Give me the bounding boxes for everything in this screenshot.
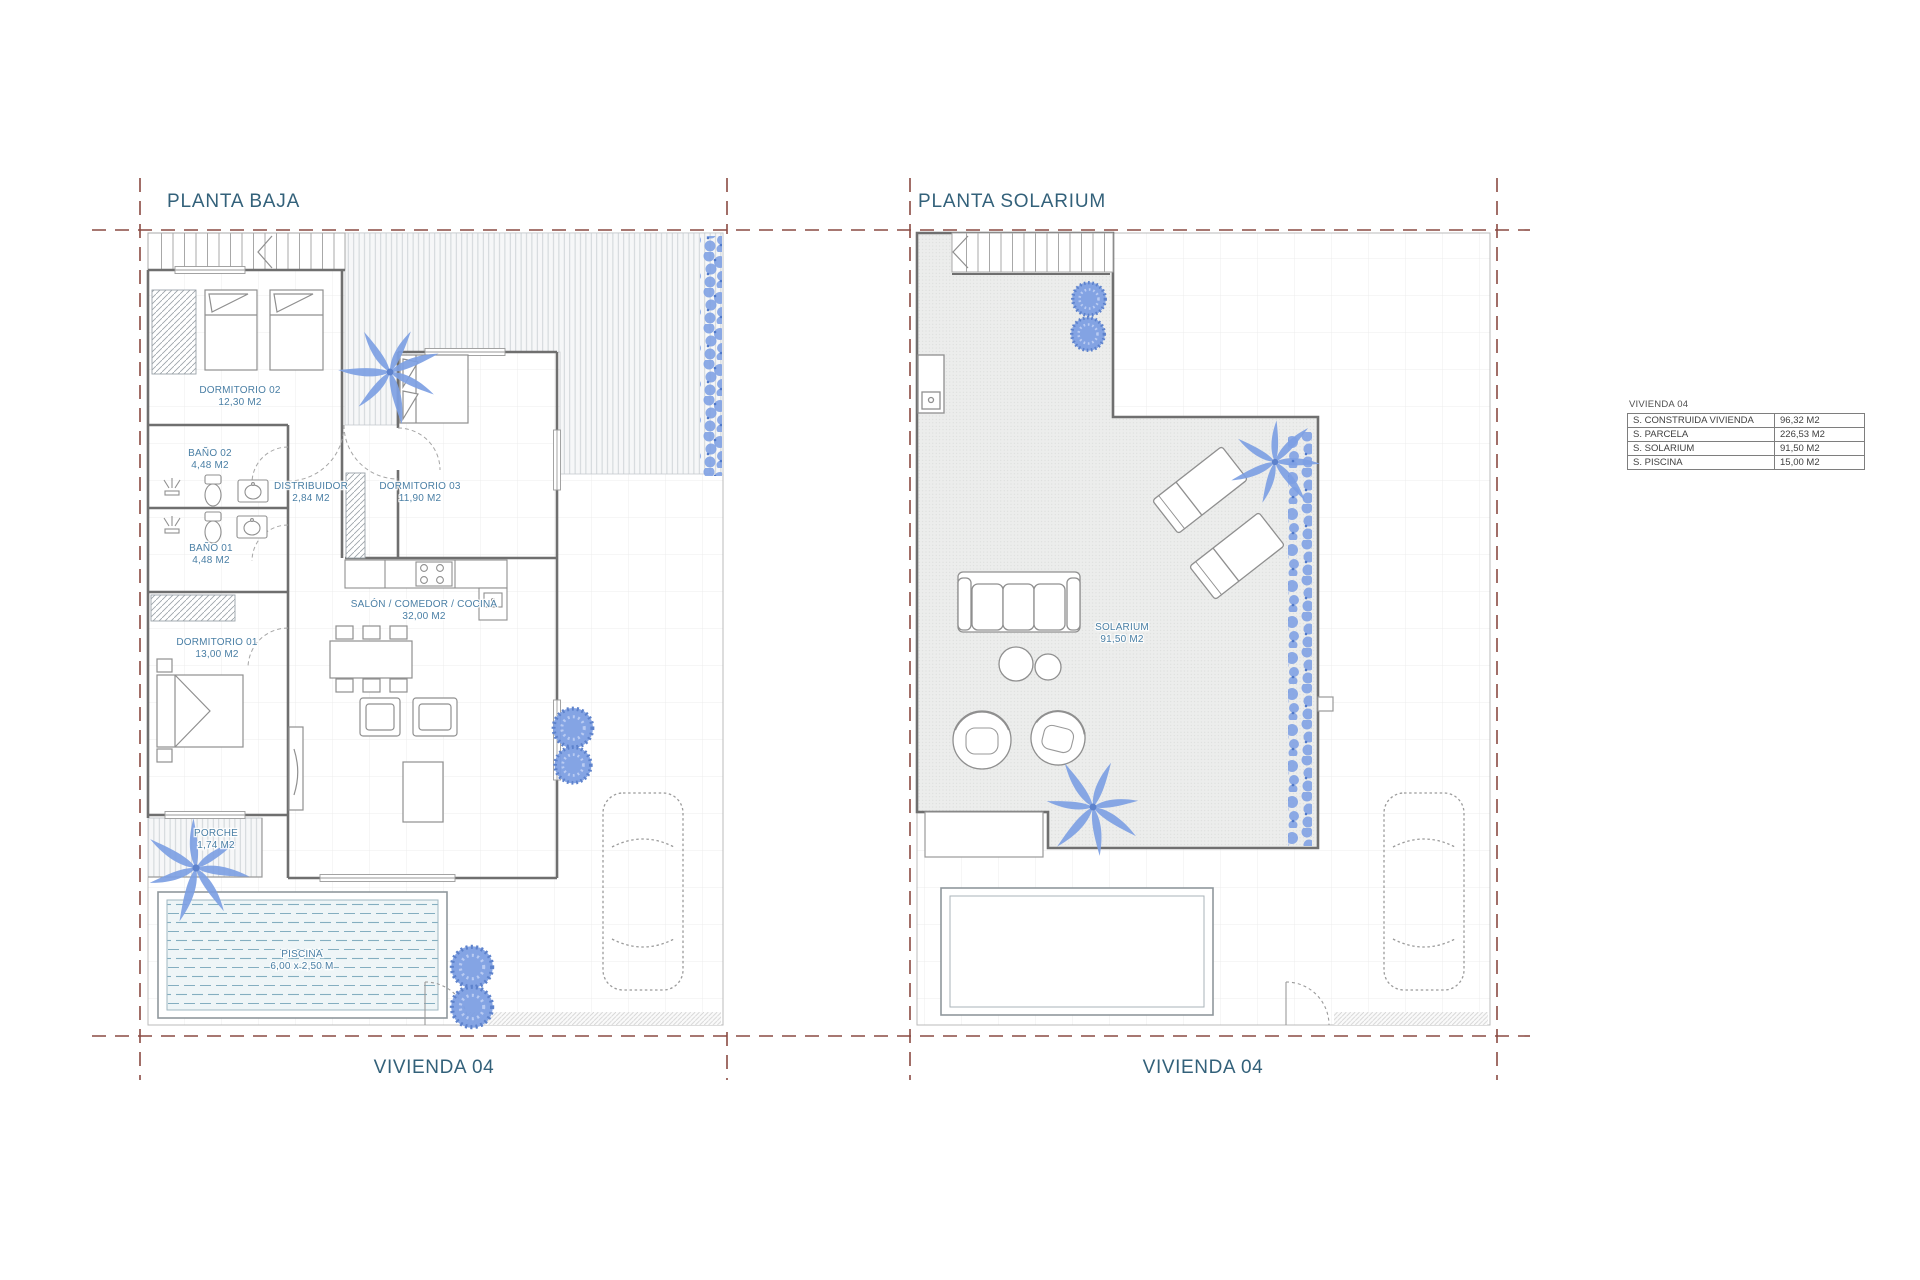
- table-cell-value: 15,00 M2: [1775, 456, 1865, 470]
- room-area-solarium: 91,50 M2: [1100, 634, 1144, 645]
- room-area-dormitorio-03: 11,90 M2: [399, 493, 442, 504]
- room-label-dormitorio-01: DORMITORIO 01: [176, 637, 258, 648]
- bush: [1072, 282, 1106, 316]
- table-cell-value: 91,50 M2: [1775, 442, 1865, 456]
- summary-table: S. CONSTRUIDA VIVIENDA 96,32 M2 S. PARCE…: [1627, 413, 1865, 470]
- room-area-dormitorio-01: 13,00 M2: [195, 649, 239, 660]
- round-table: [1035, 654, 1061, 680]
- table-cell-value: 96,32 M2: [1775, 414, 1865, 428]
- room-area-dormitorio-02: 12,30 M2: [218, 397, 262, 408]
- driveway-strip: [467, 1012, 721, 1025]
- round-table: [999, 647, 1033, 681]
- room-label-solarium: SOLARIUM: [1095, 622, 1149, 633]
- room-label-distribuidor: DISTRIBUIDOR: [274, 481, 348, 492]
- table-cell-label: S. SOLARIUM: [1628, 442, 1775, 456]
- dining-set: [330, 626, 412, 692]
- pool-outline: [941, 888, 1213, 1015]
- room-label-dormitorio-03: DORMITORIO 03: [379, 481, 461, 492]
- table-row: S. CONSTRUIDA VIVIENDA 96,32 M2: [1628, 414, 1865, 428]
- table-cell-value: 226,53 M2: [1775, 428, 1865, 442]
- room-area-porche: 1,74 M2: [197, 840, 235, 851]
- solarium-sofa: [958, 572, 1080, 632]
- room-area-bano-02: 4,48 M2: [191, 460, 229, 471]
- table-row: S. SOLARIUM 91,50 M2: [1628, 442, 1865, 456]
- driveway-strip: [1334, 1012, 1488, 1025]
- room-area-piscina: 6,00 x 2,50 M: [270, 961, 333, 972]
- table-row: S. PARCELA 226,53 M2: [1628, 428, 1865, 442]
- planta-solarium-plan: [917, 233, 1490, 1025]
- bush: [451, 946, 493, 988]
- room-area-bano-01: 4,48 M2: [192, 555, 230, 566]
- bush: [451, 986, 493, 1028]
- solarium-stairs: [952, 233, 1113, 274]
- right-plan-footer: VIVIENDA 04: [1143, 1057, 1264, 1078]
- right-plan-title: PLANTA SOLARIUM: [918, 191, 1106, 212]
- room-area-distribuidor: 2,84 M2: [292, 493, 330, 504]
- exterior-stairs: [148, 233, 345, 270]
- bush: [1071, 317, 1105, 351]
- left-plan-footer: VIVIENDA 04: [374, 1057, 495, 1078]
- room-label-porche: PORCHE: [194, 828, 238, 839]
- bush: [555, 747, 592, 784]
- table-cell-label: S. PARCELA: [1628, 428, 1775, 442]
- room-label-bano-01: BAÑO 01: [189, 541, 233, 554]
- hedge: [700, 236, 722, 476]
- left-plan-title: PLANTA BAJA: [167, 191, 300, 212]
- room-label-piscina: PISCINA: [281, 949, 323, 960]
- planta-baja-plan: [120, 233, 723, 1028]
- room-label-salon: SALÓN / COMEDOR / COCINA: [351, 597, 498, 610]
- pod-chair: [953, 711, 1011, 769]
- room-label-dormitorio-02: DORMITORIO 02: [199, 385, 281, 396]
- bed-dormitorio-01: [157, 659, 243, 762]
- lower-terrace: [925, 812, 1043, 857]
- room-area-salon: 32,00 M2: [402, 611, 446, 622]
- wall-step: [1318, 697, 1333, 711]
- plans-drawing: PLANTA BAJA PLANTA SOLARIUM VIVIENDA 04 …: [0, 0, 1920, 1280]
- summary-table-title: VIVIENDA 04: [1629, 399, 1865, 410]
- bbq-column: [918, 355, 944, 413]
- summary-table-block: VIVIENDA 04 S. CONSTRUIDA VIVIENDA 96,32…: [1627, 399, 1865, 470]
- bush: [553, 708, 593, 748]
- table-cell-label: S. PISCINA: [1628, 456, 1775, 470]
- table-cell-label: S. CONSTRUIDA VIVIENDA: [1628, 414, 1775, 428]
- hedge: [1288, 432, 1312, 846]
- table-row: S. PISCINA 15,00 M2: [1628, 456, 1865, 470]
- room-label-bano-02: BAÑO 02: [188, 446, 232, 459]
- floor-plan-sheet: PLANTA BAJA PLANTA SOLARIUM VIVIENDA 04 …: [0, 0, 1920, 1280]
